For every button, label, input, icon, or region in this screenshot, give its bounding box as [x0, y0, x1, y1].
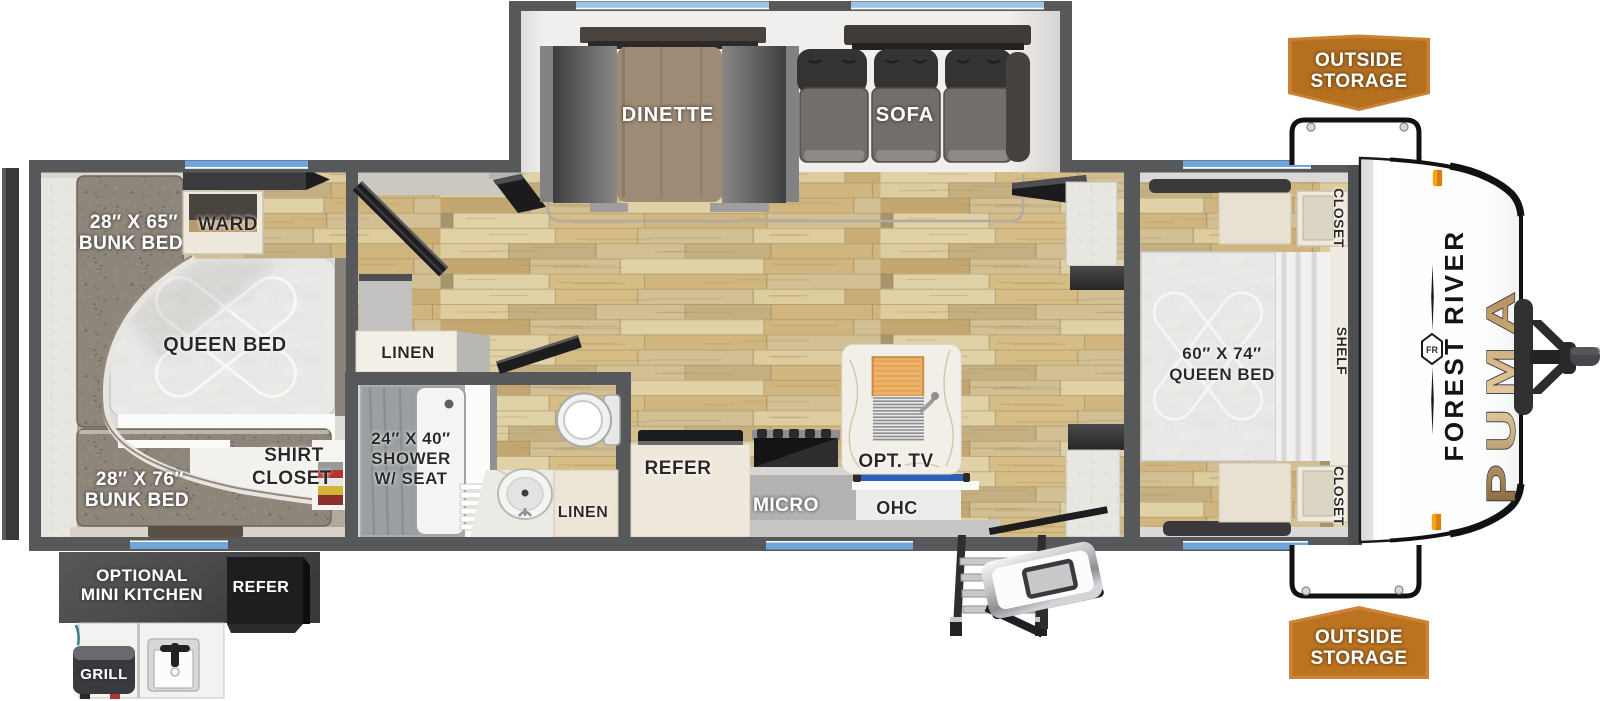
- svg-text:STORAGE: STORAGE: [1310, 71, 1407, 92]
- svg-text:SHELF: SHELF: [1334, 327, 1350, 375]
- svg-text:OPT. TV: OPT. TV: [858, 451, 933, 472]
- svg-text:SOFA: SOFA: [876, 104, 934, 126]
- svg-text:28″ X 76″: 28″ X 76″: [96, 469, 184, 490]
- svg-text:BUNK BED: BUNK BED: [79, 233, 183, 254]
- svg-text:OUTSIDE: OUTSIDE: [1315, 50, 1403, 71]
- svg-text:OHC: OHC: [876, 498, 918, 518]
- svg-text:OPTIONAL: OPTIONAL: [96, 566, 188, 585]
- svg-text:LINEN: LINEN: [381, 343, 435, 362]
- svg-text:60″ X 74″: 60″ X 74″: [1182, 344, 1261, 363]
- svg-text:MINI KITCHEN: MINI KITCHEN: [81, 585, 203, 604]
- svg-text:REFER: REFER: [233, 579, 290, 596]
- svg-text:REFER: REFER: [645, 458, 712, 479]
- svg-text:28″ X 65″: 28″ X 65″: [90, 212, 178, 233]
- svg-text:QUEEN BED: QUEEN BED: [1169, 365, 1275, 384]
- svg-text:DINETTE: DINETTE: [622, 104, 715, 126]
- svg-text:CLOSET: CLOSET: [1331, 188, 1347, 248]
- svg-text:GRILL: GRILL: [80, 666, 128, 683]
- svg-text:CLOSET: CLOSET: [252, 468, 332, 489]
- svg-text:LINEN: LINEN: [558, 504, 609, 521]
- svg-text:STORAGE: STORAGE: [1310, 648, 1407, 669]
- svg-text:CLOSET: CLOSET: [1331, 466, 1347, 526]
- svg-text:QUEEN BED: QUEEN BED: [163, 334, 286, 356]
- svg-text:SHOWER: SHOWER: [371, 449, 451, 468]
- svg-text:BUNK BED: BUNK BED: [85, 490, 189, 511]
- svg-text:OUTSIDE: OUTSIDE: [1315, 627, 1403, 648]
- svg-text:FR: FR: [1426, 345, 1438, 355]
- svg-text:24″ X 40″: 24″ X 40″: [371, 429, 450, 448]
- svg-text:SHIRT: SHIRT: [264, 445, 324, 466]
- svg-text:WARD: WARD: [198, 214, 258, 235]
- svg-text:MICRO: MICRO: [753, 495, 819, 516]
- svg-text:FOREST RIVER: FOREST RIVER: [1439, 229, 1469, 462]
- svg-text:W/ SEAT: W/ SEAT: [374, 469, 447, 488]
